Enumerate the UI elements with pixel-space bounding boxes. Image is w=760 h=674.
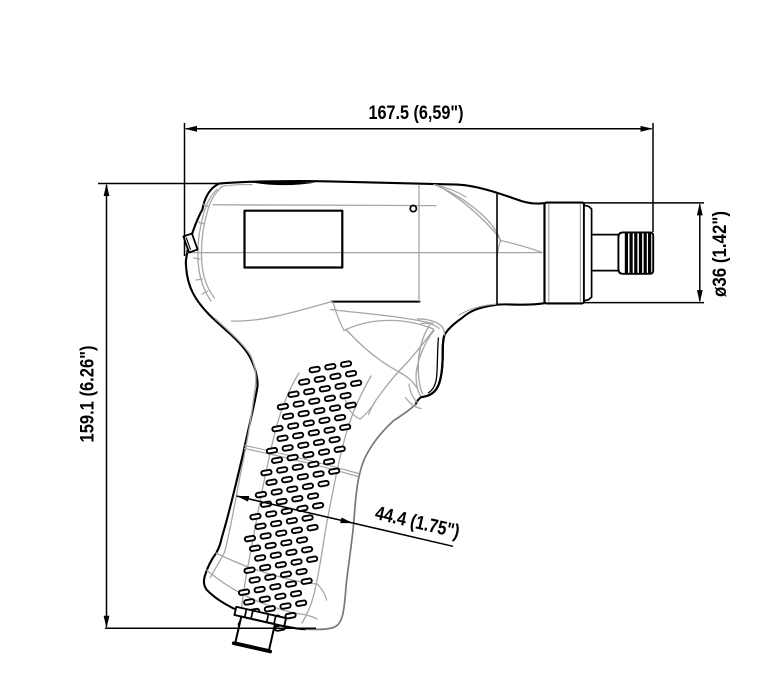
svg-text:ø36 (1.42"): ø36 (1.42") (709, 211, 731, 297)
svg-text:159.1 (6.26"): 159.1 (6.26") (77, 346, 99, 443)
svg-text:167.5 (6,59"): 167.5 (6,59") (369, 102, 464, 124)
